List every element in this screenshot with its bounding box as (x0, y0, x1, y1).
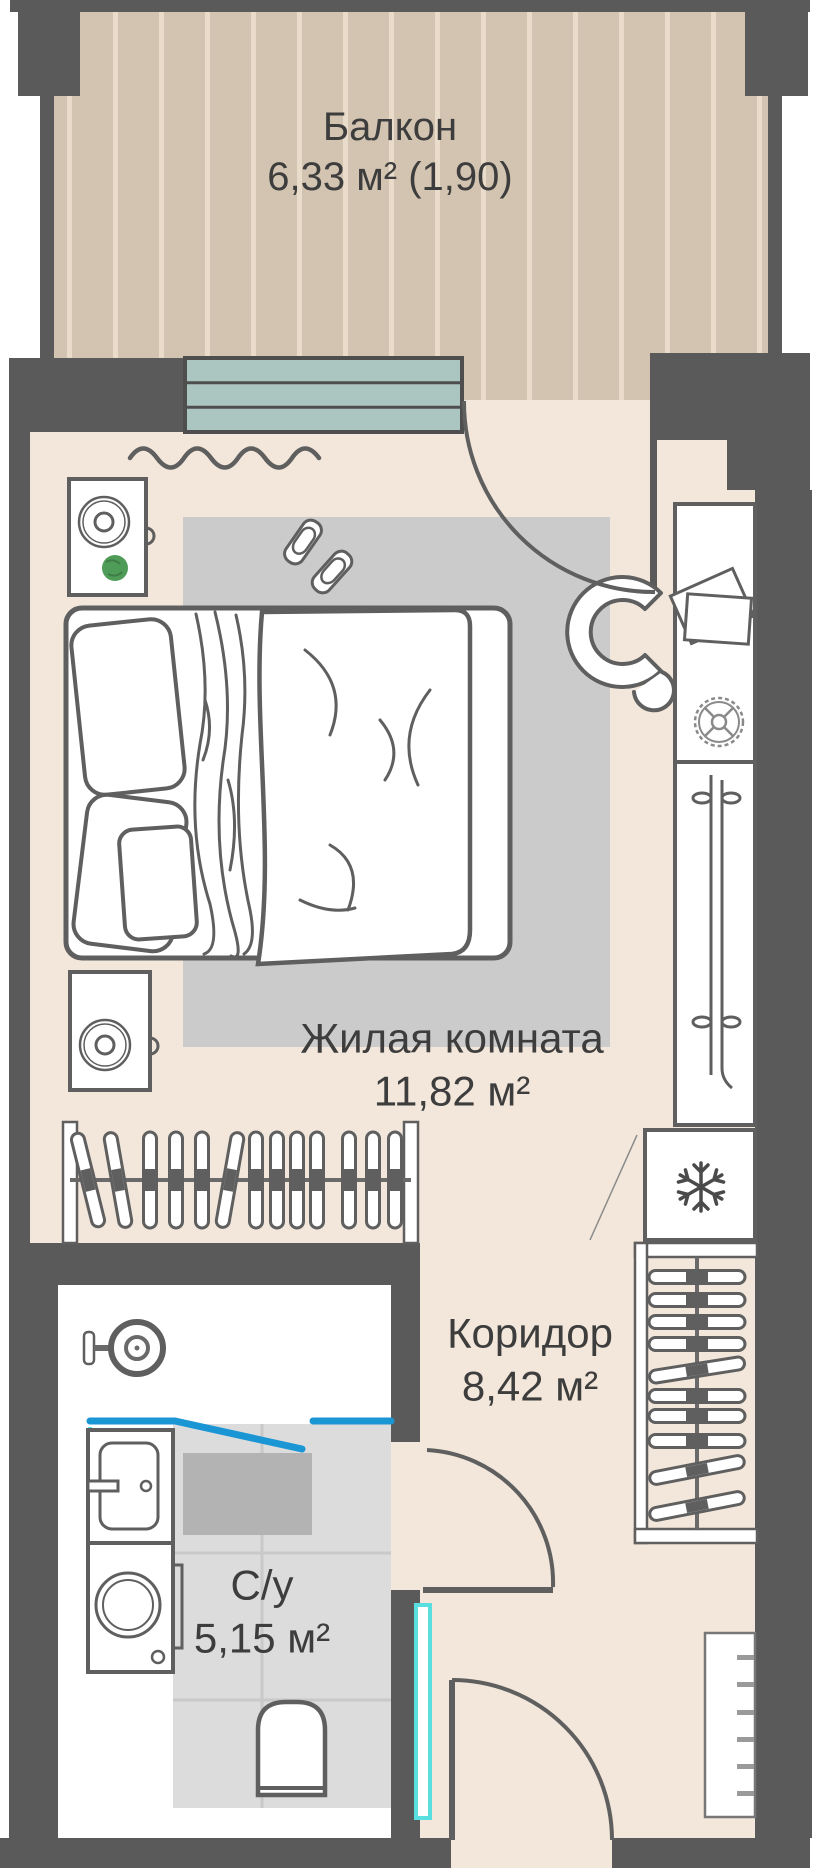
room-area: 8,42 м² (447, 1360, 613, 1413)
balcony-floor (54, 12, 768, 400)
tall-cabinet (675, 762, 755, 1125)
bed (66, 608, 510, 964)
room-name: Коридор (447, 1308, 613, 1361)
balcony-window (185, 358, 462, 432)
nightstand-bottom (70, 972, 158, 1090)
room-name: Балкон (267, 102, 512, 152)
washing-machine (88, 1543, 182, 1672)
bed-duvet (258, 610, 470, 964)
desk (670, 504, 755, 762)
toilet (258, 1702, 325, 1795)
floor-plan-drawing (0, 0, 828, 1868)
nightstand-top (69, 479, 154, 595)
pillow (118, 826, 197, 941)
room-label-living: Жилая комната 11,82 м² (300, 1013, 603, 1118)
room-name: Жилая комната (300, 1013, 603, 1066)
pillow (69, 617, 186, 797)
shower-mat (183, 1453, 312, 1535)
room-area: 6,33 м² (1,90) (267, 152, 512, 202)
plant-icon (102, 555, 128, 581)
room-label-bathroom: С/у 5,15 м² (194, 1560, 330, 1665)
room-label-corridor: Коридор 8,42 м² (447, 1308, 613, 1413)
sink (88, 1430, 173, 1543)
radiator-panel (705, 1633, 755, 1817)
floor-plan: Балкон 6,33 м² (1,90) Жилая комната 11,8… (0, 0, 828, 1868)
fridge (645, 1130, 755, 1240)
bathroom-glass-door (416, 1605, 430, 1818)
room-area: 11,82 м² (300, 1065, 603, 1118)
room-name: С/у (194, 1560, 330, 1613)
room-label-balcony: Балкон 6,33 м² (1,90) (267, 102, 512, 202)
room-area: 5,15 м² (194, 1612, 330, 1665)
